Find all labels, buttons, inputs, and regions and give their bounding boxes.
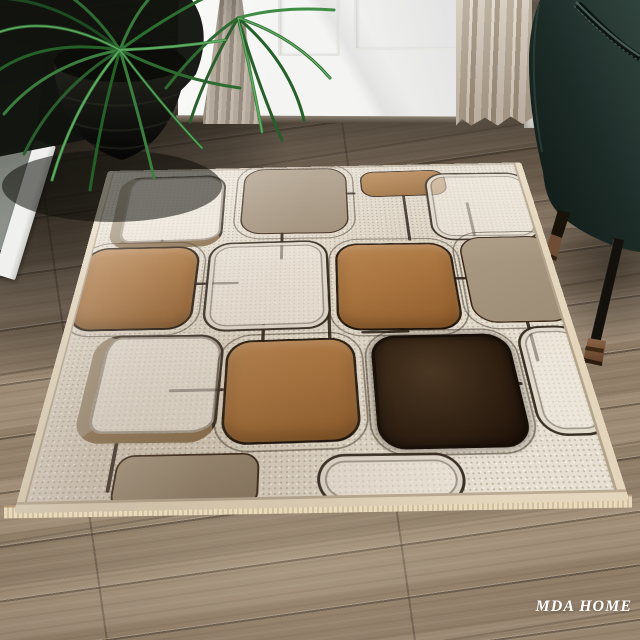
rug-square-choc <box>370 333 534 450</box>
door-panel <box>354 0 466 50</box>
rug-connector-line <box>402 193 412 240</box>
pot-shadow <box>2 150 222 222</box>
brand-watermark: MDA HOME <box>536 598 632 616</box>
rug-square-outline <box>201 240 332 333</box>
rug-square-caramel <box>335 242 465 330</box>
potted-palm-plant <box>0 0 356 224</box>
room-photo: MDA HOME <box>0 0 640 640</box>
rug-square-caramel <box>220 337 363 446</box>
rug-square-outlineT <box>71 334 225 444</box>
